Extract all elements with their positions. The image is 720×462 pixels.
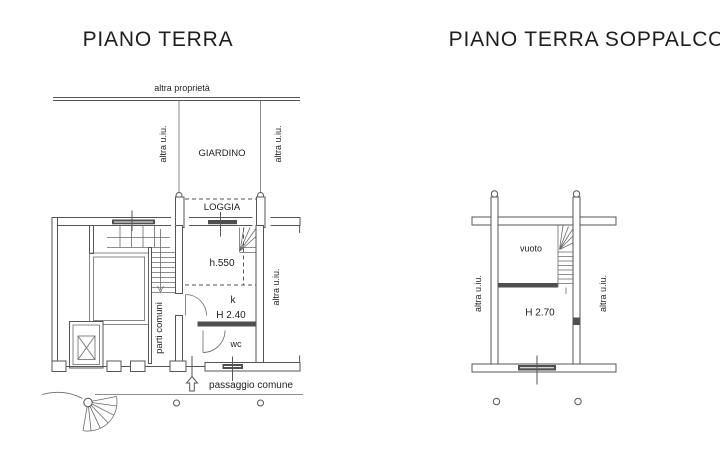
plan-piano-terra-soppalco: PIANO TERRA SOPPALCO vuoto H 2.70 altra … <box>449 28 720 405</box>
corridor-wall <box>149 248 152 364</box>
main-room-height-label: h.550 <box>209 258 234 269</box>
top-column-circle-left <box>491 191 497 197</box>
walkway-column <box>174 400 180 406</box>
spiral-staircase <box>83 397 117 432</box>
right-wall <box>573 197 580 372</box>
giardino-fence <box>179 101 261 193</box>
left-wall <box>52 218 58 372</box>
bottom-column-circle-left <box>493 398 499 404</box>
altra-uiu-right-label: altra u.iu. <box>273 125 283 162</box>
wall-marker <box>574 318 580 326</box>
entry-arrow-icon <box>187 377 198 392</box>
wc-door-swing <box>203 331 225 353</box>
altra-uiu-left-label: altra u.iu. <box>473 275 483 312</box>
vuoto-parapet-wall <box>498 283 558 288</box>
mezzanine-stair-fan <box>560 226 574 250</box>
altra-proprieta-label: altra proprietà <box>154 83 210 93</box>
walkway-column <box>258 400 264 406</box>
altra-uiu-strip-label: altra u.iu. <box>271 268 281 305</box>
property-boundary-line <box>53 98 300 101</box>
winder-stairs <box>240 228 257 253</box>
floor-plan-drawing: PIANO TERRA altra proprietà altra u.iu. … <box>0 0 720 462</box>
passaggio-comune-label: passaggio comune <box>209 380 293 391</box>
giardino-label: GIARDINO <box>199 148 246 159</box>
vuoto-label: vuoto <box>520 244 542 254</box>
kitchen-wc-wall <box>198 322 257 327</box>
bottom-column-circle-right <box>575 398 581 404</box>
kitchen-height-label: H 2.40 <box>216 310 246 321</box>
hall-inner-wall <box>94 257 145 321</box>
room-height-label: H 2.70 <box>525 308 555 319</box>
apartment-left-wall-lower <box>176 316 183 364</box>
plan-piano-terra: PIANO TERRA altra proprietà altra u.iu. … <box>42 28 303 431</box>
loggia-pillar-right <box>257 197 266 228</box>
mezzanine-stair-treads <box>558 252 573 284</box>
interior-wall-stub <box>90 226 94 254</box>
wc-label: wc <box>230 339 242 349</box>
left-plan-title: PIANO TERRA <box>83 28 234 51</box>
parti-comuni-label: parti comuni <box>154 302 165 354</box>
loggia-pillar-left <box>176 197 185 228</box>
kitchen-label: k <box>231 295 237 306</box>
altra-uiu-left-label: altra u.iu. <box>158 125 168 162</box>
loggia-door <box>208 220 237 224</box>
altra-uiu-right-label: altra u.iu. <box>598 275 608 312</box>
walkway-line <box>42 392 303 398</box>
floor-plan-sheet: PIANO TERRA altra proprietà altra u.iu. … <box>0 0 720 462</box>
hall-outer-wall <box>90 253 149 325</box>
left-wall <box>491 197 498 372</box>
apartment-left-wall-upper <box>176 226 183 294</box>
bottom-wall <box>205 363 300 372</box>
right-plan-title: PIANO TERRA SOPPALCO <box>449 28 720 51</box>
apartment-right-wall <box>256 226 264 364</box>
elevator-shaft <box>70 322 104 369</box>
top-column-circle-right <box>573 191 579 197</box>
loggia-label: LOGGIA <box>204 202 241 213</box>
entrance-door-swing <box>186 295 207 316</box>
